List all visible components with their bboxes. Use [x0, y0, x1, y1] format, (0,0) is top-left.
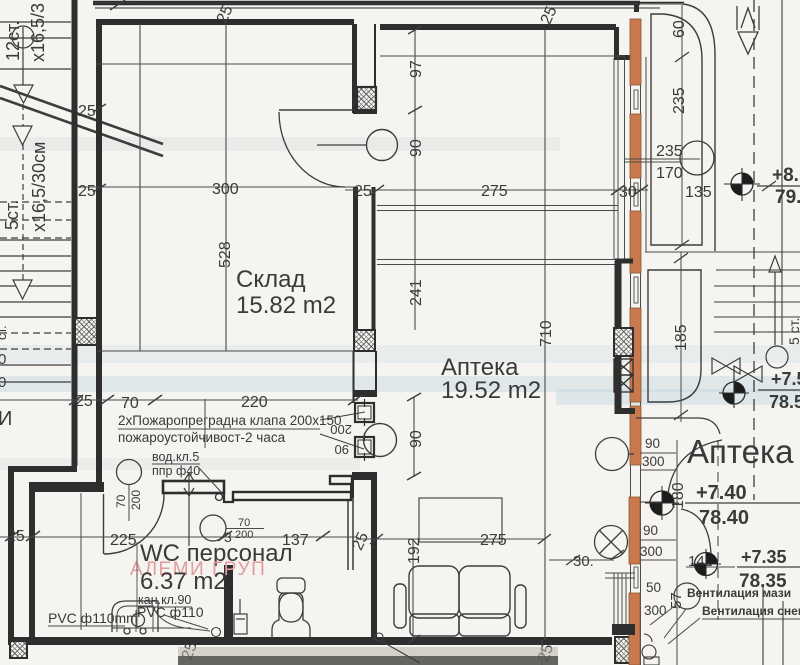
svg-text:6.37 m2: 6.37 m2 [140, 568, 227, 595]
svg-text:180: 180 [670, 482, 687, 509]
svg-text:79.: 79. [775, 187, 800, 208]
svg-text:300: 300 [644, 603, 667, 618]
svg-text:ст.: ст. [0, 325, 9, 340]
svg-text:2хПожаропреградна клапа 200х15: 2хПожаропреградна клапа 200х150 [118, 413, 342, 428]
svg-text:275: 275 [480, 532, 507, 549]
svg-text:15.82 m2: 15.82 m2 [236, 292, 336, 319]
svg-text:90: 90 [335, 442, 349, 457]
svg-text:528: 528 [217, 241, 234, 268]
svg-text:300: 300 [642, 454, 665, 469]
svg-text:300: 300 [212, 181, 239, 198]
svg-text:PVC ф110mm: PVC ф110mm [48, 610, 138, 626]
svg-text:70: 70 [121, 395, 139, 412]
svg-text:57: 57 [668, 592, 685, 609]
svg-text:97: 97 [408, 60, 425, 78]
svg-text:вод.кл.5: вод.кл.5 [152, 450, 199, 464]
svg-text:170: 170 [656, 165, 683, 182]
svg-text:ппр ф40: ппр ф40 [152, 464, 200, 478]
svg-text:Аптека: Аптека [687, 433, 794, 470]
svg-text:241: 241 [408, 279, 425, 306]
svg-text:30.: 30. [573, 553, 594, 570]
svg-text:5 ст.: 5 ст. [786, 318, 800, 345]
svg-text:90: 90 [645, 436, 660, 451]
svg-text:Вентилация мази: Вентилация мази [687, 586, 791, 600]
svg-text:х16,5/3: х16,5/3 [28, 3, 48, 62]
svg-text:25: 25 [7, 528, 25, 545]
svg-text:235: 235 [671, 87, 688, 114]
svg-text:192: 192 [406, 537, 423, 564]
svg-text:200: 200 [129, 490, 143, 510]
svg-text:300: 300 [640, 544, 663, 559]
svg-text:+8.: +8. [772, 165, 799, 186]
svg-text:5ст.: 5ст. [2, 200, 22, 230]
svg-text:19.52 m2: 19.52 m2 [441, 377, 541, 404]
svg-text:90: 90 [643, 523, 658, 538]
svg-text:225: 225 [110, 532, 137, 549]
svg-text:78.5: 78.5 [769, 392, 800, 412]
svg-text:50: 50 [646, 580, 661, 595]
svg-text:+7.40: +7.40 [696, 482, 747, 504]
svg-text:185: 185 [673, 324, 690, 351]
svg-text:78.40: 78.40 [699, 507, 749, 529]
svg-text:60: 60 [671, 20, 688, 38]
svg-text:+7.5: +7.5 [771, 369, 800, 389]
svg-text:12ст.: 12ст. [3, 21, 23, 61]
svg-text:0: 0 [0, 374, 6, 391]
svg-text:+7.35: +7.35 [741, 547, 787, 567]
svg-text:70: 70 [238, 517, 250, 529]
svg-text:710: 710 [538, 320, 555, 347]
svg-text:235: 235 [656, 143, 683, 160]
svg-text:пожароустойчивост-2 часа: пожароустойчивост-2 часа [118, 430, 286, 445]
svg-text:И: И [0, 408, 12, 430]
svg-text:25: 25 [354, 183, 372, 200]
svg-text:25: 25 [75, 393, 93, 410]
svg-text:70: 70 [114, 494, 128, 508]
svg-text:0: 0 [0, 351, 6, 368]
svg-text:Вентилация снек: Вентилация снек [702, 604, 800, 618]
svg-text:90: 90 [408, 139, 425, 157]
svg-text:220: 220 [241, 394, 268, 411]
svg-text:275: 275 [481, 183, 508, 200]
svg-text:Склад: Склад [236, 266, 305, 293]
svg-text:х16,5/30см: х16,5/30см [29, 142, 49, 232]
svg-text:90: 90 [408, 430, 425, 448]
svg-text:135: 135 [685, 184, 712, 201]
